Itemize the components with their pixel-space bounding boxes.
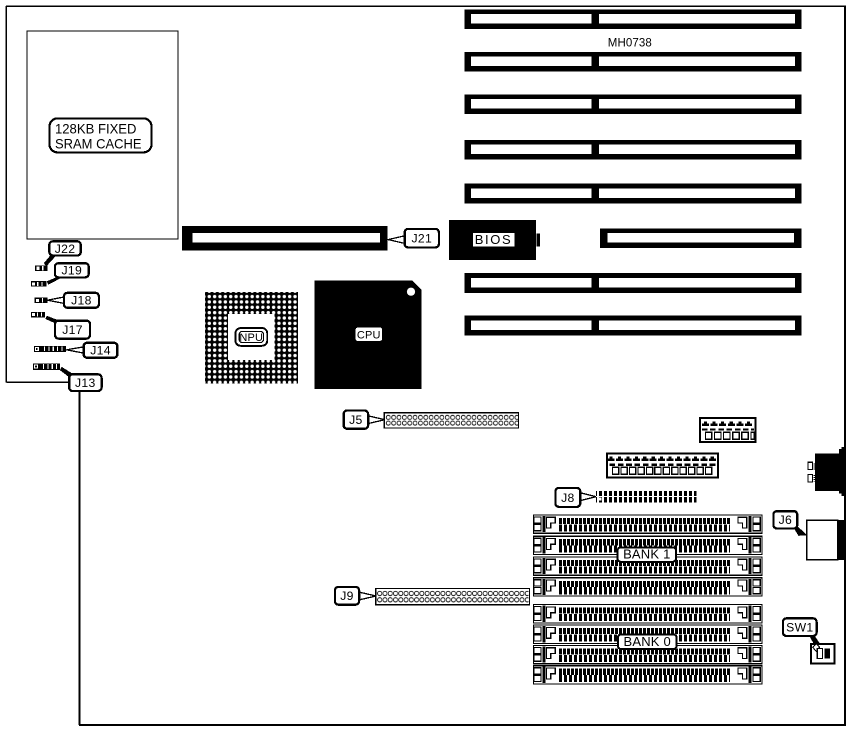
svg-text:J19: J19 <box>62 264 83 278</box>
svg-text:J6: J6 <box>779 513 792 527</box>
svg-text:J18: J18 <box>71 294 92 308</box>
svg-text:128KB FIXED: 128KB FIXED <box>55 121 137 137</box>
svg-text:J14: J14 <box>90 344 111 358</box>
svg-text:MH0738: MH0738 <box>608 38 652 50</box>
svg-text:BANK 0: BANK 0 <box>623 634 670 649</box>
svg-text:J13: J13 <box>75 376 96 390</box>
svg-text:NPU: NPU <box>239 332 263 344</box>
svg-text:J22: J22 <box>55 242 76 256</box>
svg-text:BANK 1: BANK 1 <box>623 547 670 562</box>
svg-text:J21: J21 <box>412 232 433 246</box>
svg-text:BIOS: BIOS <box>475 232 512 247</box>
svg-text:SW1: SW1 <box>786 621 813 635</box>
svg-text:J9: J9 <box>340 589 353 603</box>
svg-text:J5: J5 <box>349 413 362 427</box>
svg-text:CPU: CPU <box>357 330 381 342</box>
svg-text:SRAM CACHE: SRAM CACHE <box>55 136 142 152</box>
svg-text:J17: J17 <box>62 323 83 337</box>
svg-text:J8: J8 <box>561 491 574 505</box>
